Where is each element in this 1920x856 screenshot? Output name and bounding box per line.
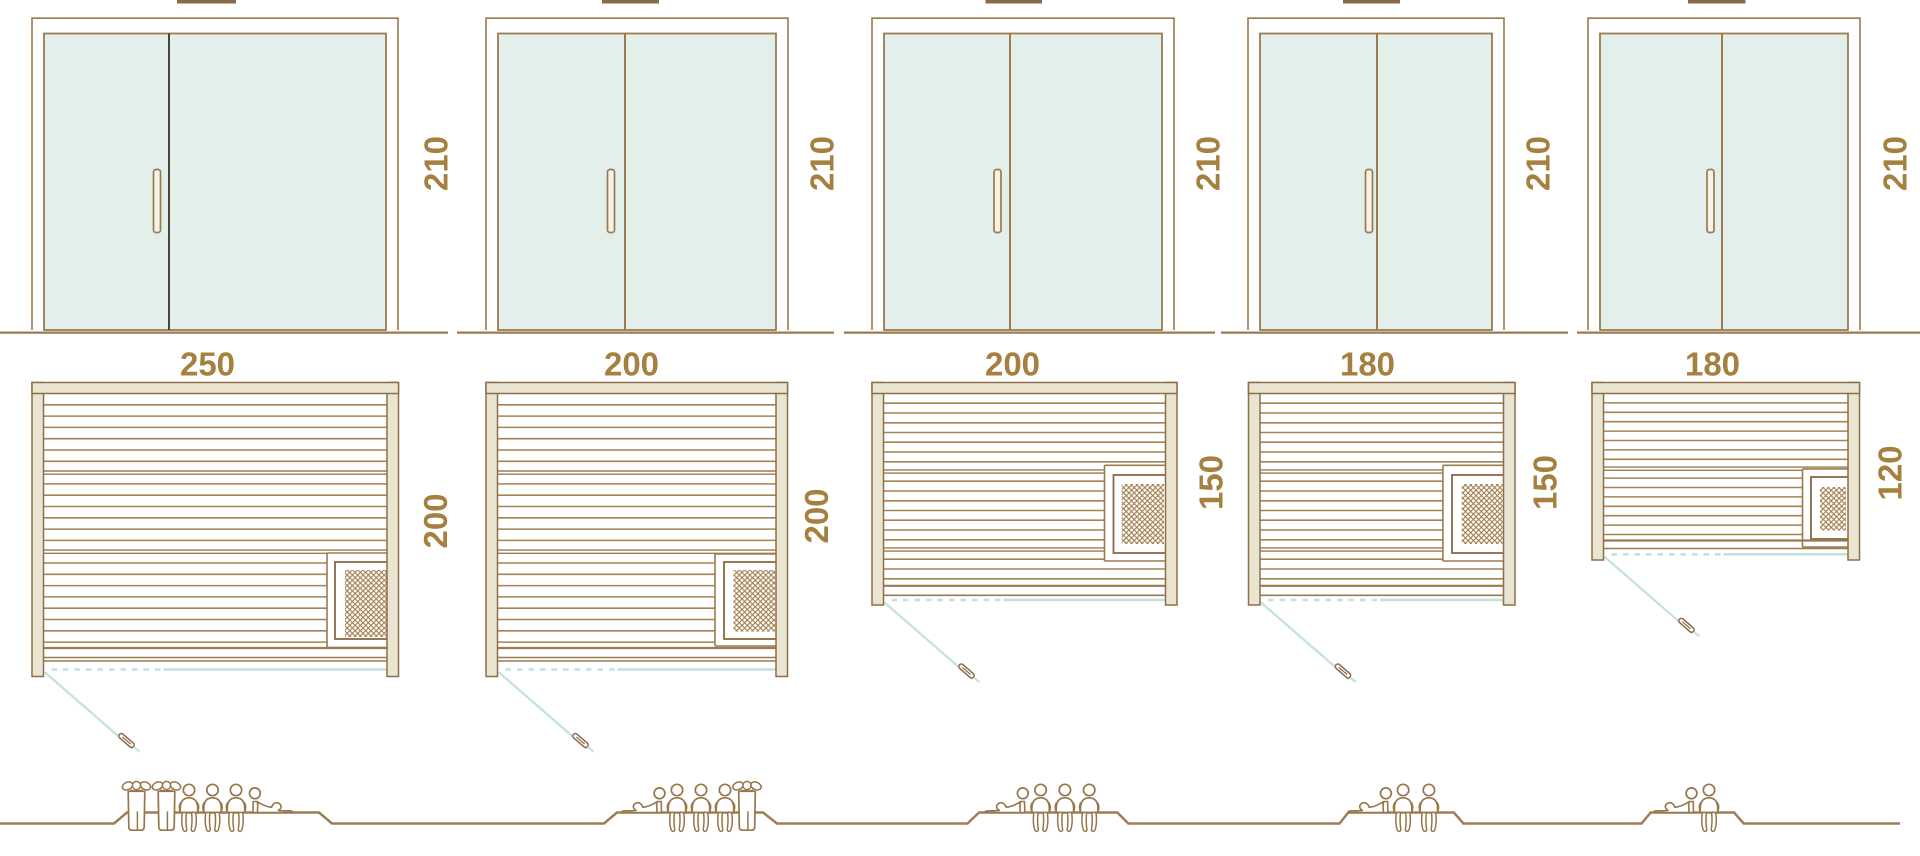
svg-text:120: 120 [1872,445,1909,500]
svg-text:200: 200 [798,488,835,543]
svg-text:150: 150 [1193,455,1230,510]
svg-text:200: 200 [604,346,659,383]
svg-text:200: 200 [985,346,1040,383]
svg-text:210: 210 [1877,136,1914,191]
svg-text:180: 180 [1340,346,1395,383]
svg-text:210: 210 [418,136,455,191]
svg-text:150: 150 [1527,455,1564,510]
svg-text:210: 210 [1190,136,1227,191]
svg-text:200: 200 [417,493,454,548]
svg-text:250: 250 [180,346,235,383]
svg-text:180: 180 [1685,346,1740,383]
svg-text:210: 210 [804,136,841,191]
svg-text:210: 210 [1520,136,1557,191]
